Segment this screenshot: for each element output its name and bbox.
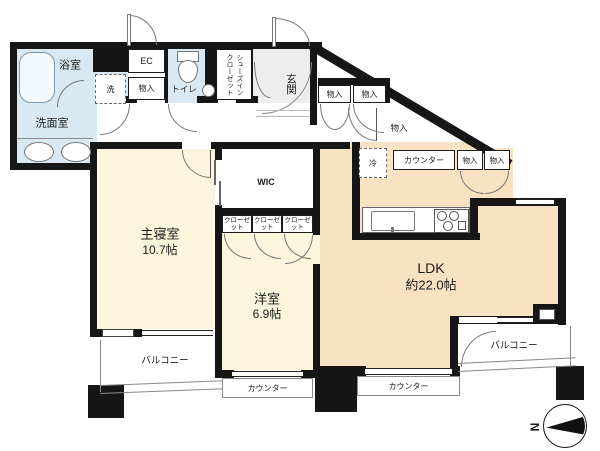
shoes-closet-label: シューズインクローゼット xyxy=(224,51,244,98)
wic-label: WIC xyxy=(257,177,275,187)
bathtub xyxy=(19,52,55,103)
wall xyxy=(197,96,205,103)
ec-box: EC xyxy=(128,49,165,73)
balcony-left-label: バルコニー xyxy=(141,357,188,368)
washer-box: 洗 xyxy=(95,74,126,104)
counter-right-box: カウンター xyxy=(357,376,460,396)
ldk-label: LDK xyxy=(417,260,444,276)
pillar xyxy=(315,374,357,412)
wall xyxy=(318,78,390,85)
meter-box-inner xyxy=(539,309,555,320)
ec-label: EC xyxy=(140,56,153,66)
toilet-label: トイレ xyxy=(171,85,197,95)
compass xyxy=(543,404,587,448)
stove-burner xyxy=(443,221,453,231)
entrance-step xyxy=(256,116,310,117)
door-arc-meter xyxy=(129,15,157,45)
wall xyxy=(90,142,97,337)
washer-label: 洗 xyxy=(107,84,115,95)
hall-storage-box: 物入 xyxy=(128,77,165,100)
western-room-label: 洋室 xyxy=(254,293,280,308)
sink-left xyxy=(24,142,54,162)
wall xyxy=(352,233,480,240)
pillar xyxy=(556,366,584,400)
door-leaf xyxy=(127,14,131,46)
entrance-storage-b-box: 物入 xyxy=(353,85,386,103)
closet-b-label: クローゼット xyxy=(253,217,281,231)
kitchen-counter-label: カウンター xyxy=(404,155,444,166)
ps-box xyxy=(102,329,134,337)
hall-storage-label: 物入 xyxy=(139,83,155,94)
closet-c-label: クローゼット xyxy=(283,217,312,231)
balcony-door-gap xyxy=(459,317,497,323)
window-bedroom xyxy=(142,330,213,336)
wall xyxy=(90,142,182,149)
compass-north-label: N xyxy=(529,423,543,432)
wic-slider-panel xyxy=(219,181,221,206)
kitchen-faucet xyxy=(391,227,394,232)
window-ldk xyxy=(365,368,452,375)
kitchen-storage-a-label: 物入 xyxy=(463,155,478,166)
closet-a-box: クローゼット xyxy=(222,215,252,233)
wall xyxy=(558,198,566,325)
wall xyxy=(10,42,17,170)
toilet-remote xyxy=(202,84,215,97)
entrance-label: 玄関 xyxy=(285,74,297,95)
kitchen-counter-box: カウンター xyxy=(393,150,455,170)
closet-c-box: クローゼット xyxy=(282,215,313,233)
door-leaf xyxy=(272,17,276,47)
counter-right-label: カウンター xyxy=(389,381,429,392)
wall xyxy=(165,49,168,103)
wall xyxy=(10,163,97,170)
wall xyxy=(93,42,128,72)
fridge-box: 冷 xyxy=(359,148,387,178)
sink-right xyxy=(61,142,91,162)
closet-a-label: クローゼット xyxy=(223,217,251,231)
balcony-right-label: バルコニー xyxy=(490,342,537,353)
room-ldk-lower xyxy=(320,316,455,370)
counter-left-box: カウンター xyxy=(222,378,313,398)
shoes-closet-box: シューズインクローゼット xyxy=(216,49,252,100)
kitchen-storage-b-label: 物入 xyxy=(490,155,505,166)
entrance-step xyxy=(256,110,310,111)
bathroom-label: 浴室 xyxy=(59,60,81,73)
window-dining xyxy=(516,199,554,205)
fridge-label: 冷 xyxy=(369,158,377,169)
wall xyxy=(310,42,317,125)
washroom-label: 洗面室 xyxy=(36,118,69,131)
stove-burner xyxy=(449,211,459,221)
western-room-size: 6.9帖 xyxy=(253,308,282,322)
wall xyxy=(222,208,313,215)
entrance-storage-b-label: 物入 xyxy=(362,89,378,100)
entrance-storage-a-label: 物入 xyxy=(327,89,343,100)
kitchen-storage-a-box: 物入 xyxy=(457,150,483,170)
floor-plan: EC 物入 洗 シューズインクローゼット 物入 物入 冷 カウンター 物入 物入… xyxy=(0,0,600,451)
balcony-right-rail-side xyxy=(570,326,571,366)
window-western xyxy=(232,371,303,377)
wall xyxy=(211,142,350,149)
master-bedroom-size: 10.7帖 xyxy=(142,244,177,258)
counter-left-label: カウンター xyxy=(248,383,288,394)
wic-slider-panel xyxy=(214,160,216,185)
master-bedroom-label: 主寝室 xyxy=(140,228,179,243)
wall xyxy=(470,198,478,240)
kitchen-storage-b-box: 物入 xyxy=(484,150,510,170)
door-arc-entrance-ext xyxy=(274,18,310,46)
stove-grill xyxy=(458,221,466,230)
closet-b-box: クローゼット xyxy=(252,215,282,233)
stove-burner xyxy=(437,211,447,221)
entrance-storage-a-box: 物入 xyxy=(318,85,351,103)
western-door-gap xyxy=(313,235,320,264)
corridor-storage-label: 物入 xyxy=(390,124,407,134)
ldk-size: 約22.0帖 xyxy=(405,279,456,294)
